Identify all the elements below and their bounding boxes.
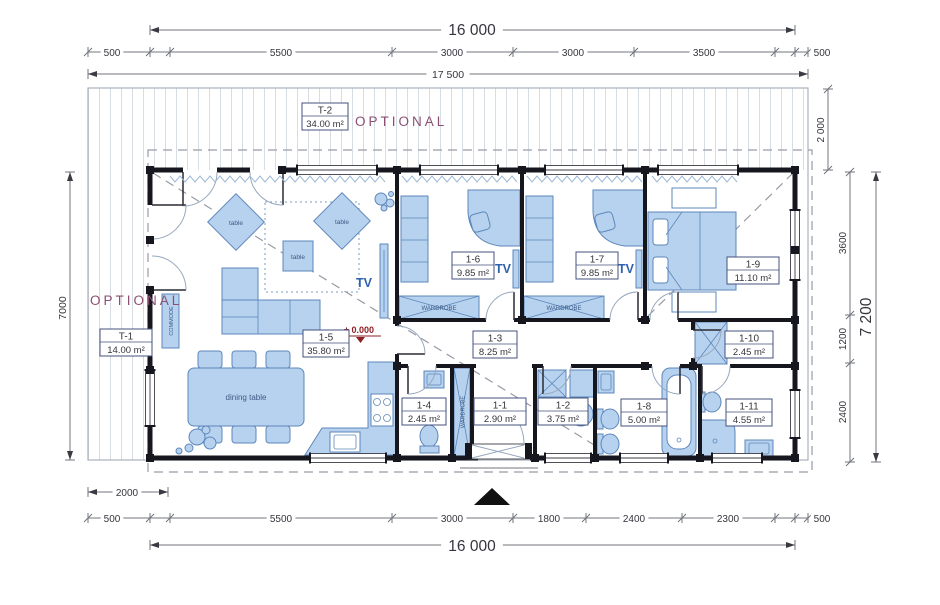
tv-panel [513, 250, 519, 288]
dim-label: 16 000 [448, 22, 496, 39]
table-label: table [291, 254, 305, 261]
chair [266, 426, 290, 443]
dim-label: 2400 [838, 400, 849, 423]
dim-label: 3500 [693, 48, 716, 59]
bidet [601, 434, 619, 454]
room-label-r1-10: 1-102.45 m² [725, 331, 773, 358]
room-area: 3.75 m² [547, 414, 579, 425]
room-id: 1-3 [488, 334, 503, 345]
dim-label: 500 [104, 514, 121, 525]
room-id: 1-2 [556, 401, 571, 412]
room-id: 1-10 [739, 334, 759, 345]
toilet [703, 392, 721, 412]
room-id: T-2 [318, 106, 333, 117]
floor-plan-svg: table table table TV COMMODE dining tabl… [0, 0, 940, 605]
dim-label: 7000 [57, 296, 69, 320]
dining-table-label: dining table [226, 393, 267, 402]
dim-label: 500 [104, 48, 121, 59]
room-label-t2: T-234.00 m² [302, 103, 348, 130]
dim-label: 2400 [623, 514, 646, 525]
room-area: 2.45 m² [733, 347, 765, 358]
dim-label: 3000 [562, 48, 585, 59]
room-area: 11.10 m² [735, 273, 772, 284]
dim-label: 500 [814, 48, 831, 59]
pillow [653, 219, 668, 245]
chair [266, 351, 290, 368]
commode-label: COMMODE [169, 306, 175, 336]
room-id: 1-6 [466, 255, 481, 266]
dim-label: 500 [814, 514, 831, 525]
dim-label: 1800 [538, 514, 561, 525]
chair [232, 426, 256, 443]
tv-panel [636, 250, 642, 288]
entrance-marker-icon [474, 488, 510, 505]
room-id: 1-9 [746, 260, 761, 271]
stove [371, 394, 393, 426]
dim-label: 7 200 [858, 297, 875, 336]
table-label: table [229, 220, 243, 227]
room-label-r1-8: 1-85.00 m² [621, 399, 667, 426]
floor-plan-page: table table table TV COMMODE dining tabl… [0, 0, 940, 605]
room-id: 1-8 [637, 402, 652, 413]
dim-label: 16 000 [448, 538, 496, 555]
room-label-r1-1: 1-12.90 m² [474, 398, 526, 425]
plant [176, 426, 216, 454]
dim-label: 3000 [441, 48, 464, 59]
toilet-tank [420, 446, 439, 453]
room-label-r1-5: 1-535.80 m² [303, 330, 349, 357]
dim-label: 3000 [441, 514, 464, 525]
optional-label-left: OPTIONAL [90, 293, 182, 308]
plant [375, 192, 394, 212]
room-label-r1-9: 1-911.10 m² [727, 257, 779, 284]
table-label: table [335, 219, 349, 226]
dim-label: 2300 [717, 514, 740, 525]
dim-label: 5500 [270, 514, 293, 525]
room-area: 9.85 m² [581, 268, 613, 279]
room-area: 14.00 m² [107, 345, 145, 356]
dimension-labels: 16 000500550030003000350050017 500200050… [57, 21, 876, 556]
room-area: 2.45 m² [408, 414, 440, 425]
chair [198, 351, 222, 368]
toilet [420, 425, 438, 447]
room-area: 5.00 m² [628, 415, 660, 426]
dim-label: 3600 [838, 231, 849, 254]
dim-label: 2000 [116, 488, 139, 499]
room-label-r1-11: 1-114.55 m² [726, 399, 772, 426]
bedroom-1-9-furniture [648, 188, 736, 312]
room-label-r1-4: 1-42.45 m² [402, 398, 446, 425]
nightstand [672, 188, 716, 208]
optional-label-top: OPTIONAL [355, 114, 447, 129]
dryer [570, 370, 594, 397]
room-id: T-1 [119, 332, 134, 343]
dim-label: 5500 [270, 48, 293, 59]
room-id: 1-11 [739, 402, 759, 413]
wardrobe-label: WARDROBE [421, 306, 456, 312]
room-area: 9.85 m² [457, 268, 489, 279]
room-id: 1-5 [319, 333, 334, 344]
tv-label: TV [495, 262, 512, 276]
room-id: 1-4 [417, 401, 432, 412]
chair [232, 351, 256, 368]
level-triangle-icon [356, 337, 365, 343]
room-area: 2.90 m² [484, 414, 516, 425]
room-label-r1-2: 1-23.75 m² [538, 398, 588, 425]
room-area: 8.25 m² [479, 347, 511, 358]
bed [401, 196, 428, 282]
dimension-lines [65, 25, 881, 550]
wardrobe-label: WARDROBE [546, 306, 581, 312]
room-area: 4.55 m² [733, 415, 765, 426]
room-label-t1: T-114.00 m² [100, 329, 152, 356]
desk-chair [469, 211, 491, 233]
wardrobe-label: WARDROBE [461, 396, 467, 429]
room-id: 1-7 [590, 255, 605, 266]
desk-chair [594, 211, 616, 233]
toilet [601, 409, 619, 429]
dim-label: 2 000 [816, 117, 827, 142]
room-label-r1-6: 1-69.85 m² [452, 252, 494, 279]
tv-label: TV [618, 262, 635, 276]
dim-label: 17 500 [432, 69, 464, 81]
curtains [170, 176, 737, 182]
dim-label: 1200 [838, 327, 849, 350]
room-area: 34.00 m² [306, 119, 344, 130]
tv-label: TV [356, 276, 373, 290]
room-area: 35.80 m² [307, 346, 345, 357]
hall-wardrobe-strip: WARDROBE [454, 368, 470, 456]
bed [526, 196, 553, 282]
room-label-r1-3: 1-38.25 m² [473, 331, 517, 358]
living-room-furniture: table table table TV COMMODE dining tabl… [162, 192, 396, 456]
pillow [653, 257, 668, 283]
room-id: 1-1 [493, 401, 508, 412]
room-label-r1-7: 1-79.85 m² [576, 252, 618, 279]
